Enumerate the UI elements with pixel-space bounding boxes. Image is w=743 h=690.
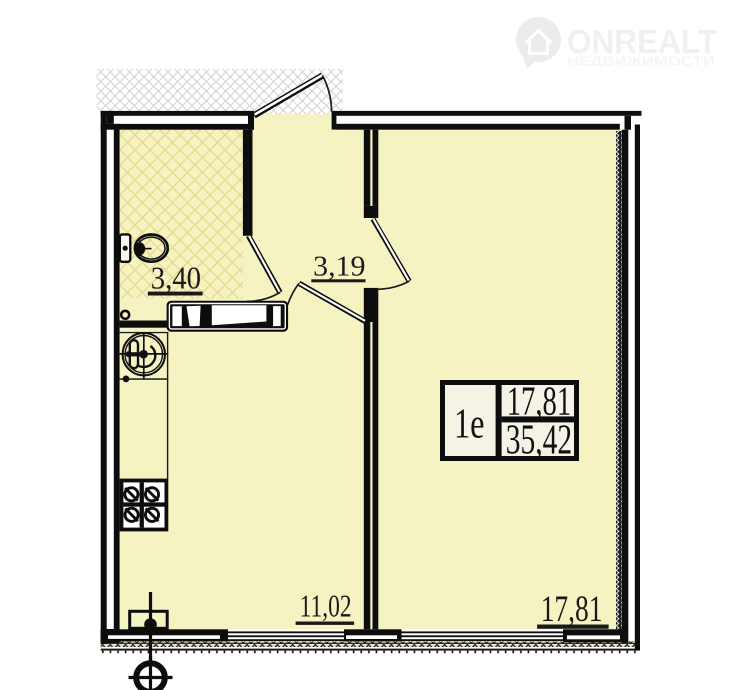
svg-text:НЕДВИЖИМОСТИ: НЕДВИЖИМОСТИ <box>567 55 715 69</box>
svg-text:1е: 1е <box>454 402 485 448</box>
svg-text:3,40: 3,40 <box>151 260 201 295</box>
svg-text:3,19: 3,19 <box>313 250 365 282</box>
svg-text:17,81: 17,81 <box>507 377 572 423</box>
svg-text:35,42: 35,42 <box>506 418 573 464</box>
svg-text:11,02: 11,02 <box>300 588 352 623</box>
svg-text:17,81: 17,81 <box>541 588 603 629</box>
